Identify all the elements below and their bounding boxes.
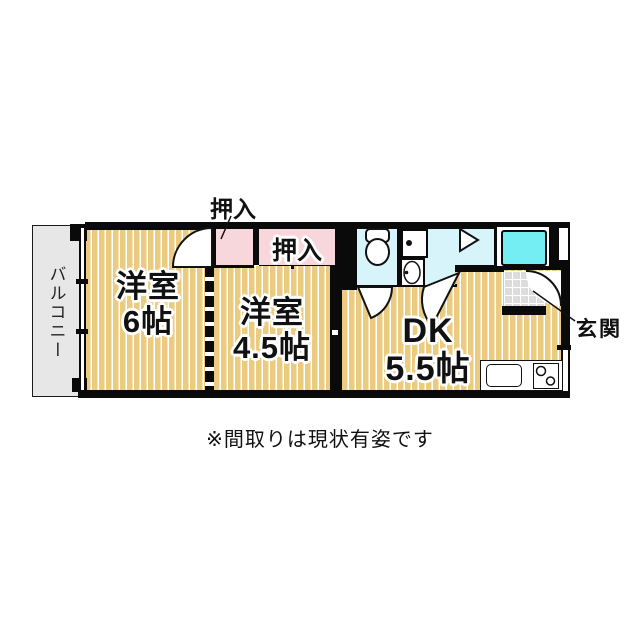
room-6-label: 洋室 6帖 (86, 270, 210, 339)
entry-door (558, 227, 569, 261)
toilet-room (357, 229, 397, 285)
balcony-window (79, 228, 86, 390)
bottom-exterior-wall (78, 390, 570, 398)
closet-2-label: 押入 (259, 231, 335, 267)
closet-1-front-line (173, 265, 254, 268)
right-window-tick (557, 345, 571, 350)
room-6-name: 洋室 (86, 270, 210, 305)
wall-room45-dk (330, 266, 342, 392)
entrance-label: 玄関 (576, 313, 630, 343)
stove (533, 363, 559, 389)
dk-name: DK (342, 312, 514, 350)
room-4-5-size: 4.5帖 (214, 331, 330, 366)
dk-size: 5.5帖 (342, 350, 514, 388)
floor-plan: バルコニー 洋室 6帖 洋室 4.5帖 DK 5.5帖 押入 押入 玄関 ※間取… (0, 0, 640, 640)
closet-1 (216, 229, 253, 265)
wall-room45-dk-tick (332, 330, 338, 335)
balcony-label: バルコニー (32, 250, 80, 375)
room-6-size: 6帖 (86, 305, 210, 340)
closet-1-label: 押入 (203, 190, 263, 224)
room-4-5-label: 洋室 4.5帖 (214, 296, 330, 365)
disclaimer-note: ※間取りは現状有姿です (0, 423, 640, 452)
entrance-tile (504, 271, 545, 307)
bathtub (501, 230, 547, 266)
water-heater-unit (401, 229, 428, 258)
room-4-5-name: 洋室 (214, 296, 330, 331)
washbasin-unit (400, 258, 425, 287)
dining-kitchen-label: DK 5.5帖 (342, 312, 514, 388)
washroom-vestibule (455, 229, 494, 265)
